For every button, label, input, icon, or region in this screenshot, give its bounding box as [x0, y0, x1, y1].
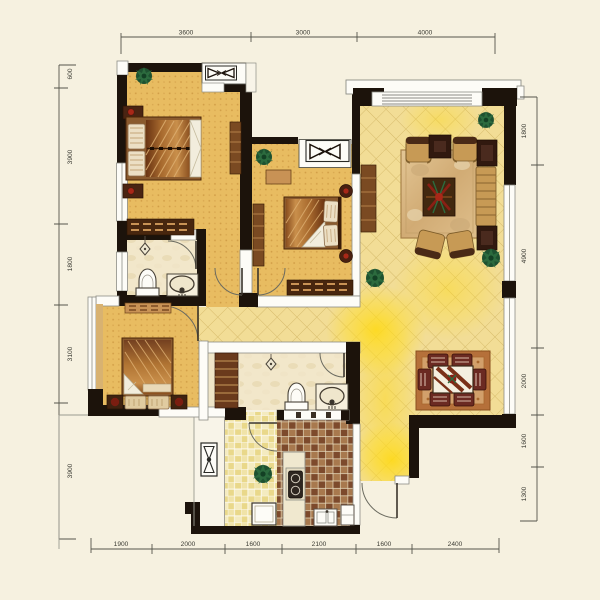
- svg-text:1600: 1600: [246, 541, 261, 548]
- svg-text:1300: 1300: [521, 486, 528, 501]
- svg-text:3000: 3000: [296, 30, 311, 37]
- svg-text:1600: 1600: [521, 433, 528, 448]
- svg-text:2400: 2400: [448, 541, 463, 548]
- svg-text:1600: 1600: [377, 541, 392, 548]
- svg-text:3600: 3600: [179, 30, 194, 37]
- svg-text:600: 600: [67, 68, 74, 79]
- svg-text:3900: 3900: [67, 149, 74, 164]
- svg-text:1800: 1800: [67, 256, 74, 271]
- svg-text:1900: 1900: [114, 541, 129, 548]
- svg-text:3900: 3900: [67, 463, 74, 478]
- svg-text:4900: 4900: [521, 248, 528, 263]
- svg-text:2000: 2000: [181, 541, 196, 548]
- svg-text:2000: 2000: [521, 373, 528, 388]
- svg-text:1800: 1800: [521, 123, 528, 138]
- svg-text:4000: 4000: [418, 30, 433, 37]
- svg-text:3100: 3100: [67, 346, 74, 361]
- svg-text:2100: 2100: [312, 541, 327, 548]
